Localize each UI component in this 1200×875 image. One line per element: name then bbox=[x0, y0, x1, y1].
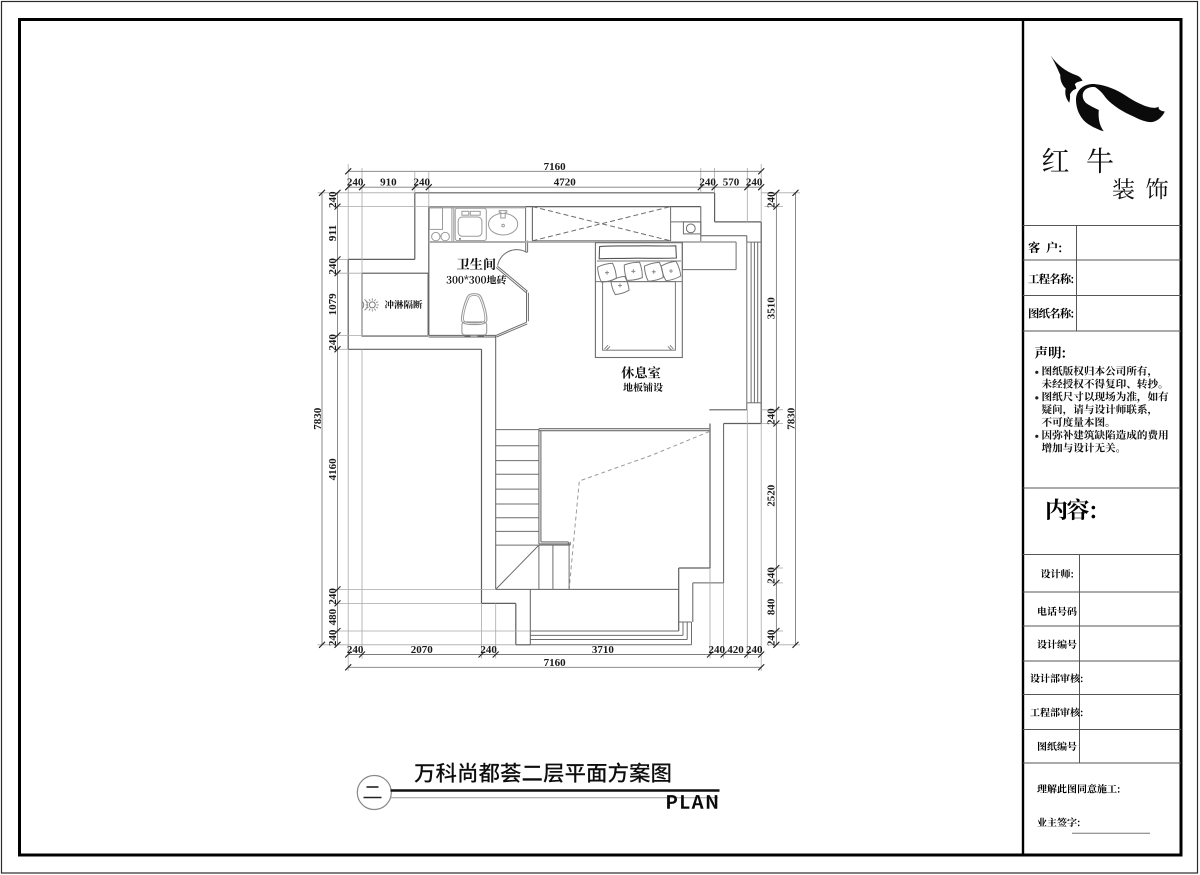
svg-text:7160: 7160 bbox=[544, 658, 566, 669]
svg-text:240: 240 bbox=[347, 645, 364, 656]
svg-text:3510: 3510 bbox=[767, 297, 778, 319]
svg-text:240: 240 bbox=[709, 645, 726, 656]
svg-text:240: 240 bbox=[767, 630, 778, 647]
svg-text:4160: 4160 bbox=[328, 458, 339, 480]
svg-text:7830: 7830 bbox=[787, 408, 798, 430]
svg-text:7160: 7160 bbox=[544, 162, 566, 173]
svg-text:1079: 1079 bbox=[328, 293, 339, 315]
svg-text:2520: 2520 bbox=[767, 485, 778, 507]
svg-text:3710: 3710 bbox=[592, 645, 614, 656]
svg-text:4720: 4720 bbox=[554, 178, 576, 189]
svg-text:240: 240 bbox=[328, 630, 339, 647]
svg-text:2070: 2070 bbox=[411, 645, 433, 656]
svg-text:240: 240 bbox=[480, 645, 497, 656]
svg-text:240: 240 bbox=[328, 191, 339, 208]
svg-text:911: 911 bbox=[328, 225, 339, 242]
svg-text:570: 570 bbox=[723, 178, 740, 189]
svg-text:240: 240 bbox=[746, 178, 763, 189]
svg-text:910: 910 bbox=[380, 178, 397, 189]
svg-text:240: 240 bbox=[699, 178, 716, 189]
svg-text:420: 420 bbox=[727, 645, 744, 656]
svg-text:240: 240 bbox=[414, 178, 431, 189]
svg-text:480: 480 bbox=[328, 609, 339, 626]
svg-text:240: 240 bbox=[767, 191, 778, 208]
svg-text:240: 240 bbox=[328, 334, 339, 351]
svg-text:240: 240 bbox=[328, 588, 339, 605]
svg-text:240: 240 bbox=[767, 567, 778, 584]
svg-text:7830: 7830 bbox=[313, 408, 324, 430]
svg-text:240: 240 bbox=[328, 258, 339, 275]
svg-text:840: 840 bbox=[767, 599, 778, 616]
svg-text:240: 240 bbox=[767, 408, 778, 425]
svg-text:240: 240 bbox=[347, 178, 364, 189]
svg-text:240: 240 bbox=[746, 645, 763, 656]
